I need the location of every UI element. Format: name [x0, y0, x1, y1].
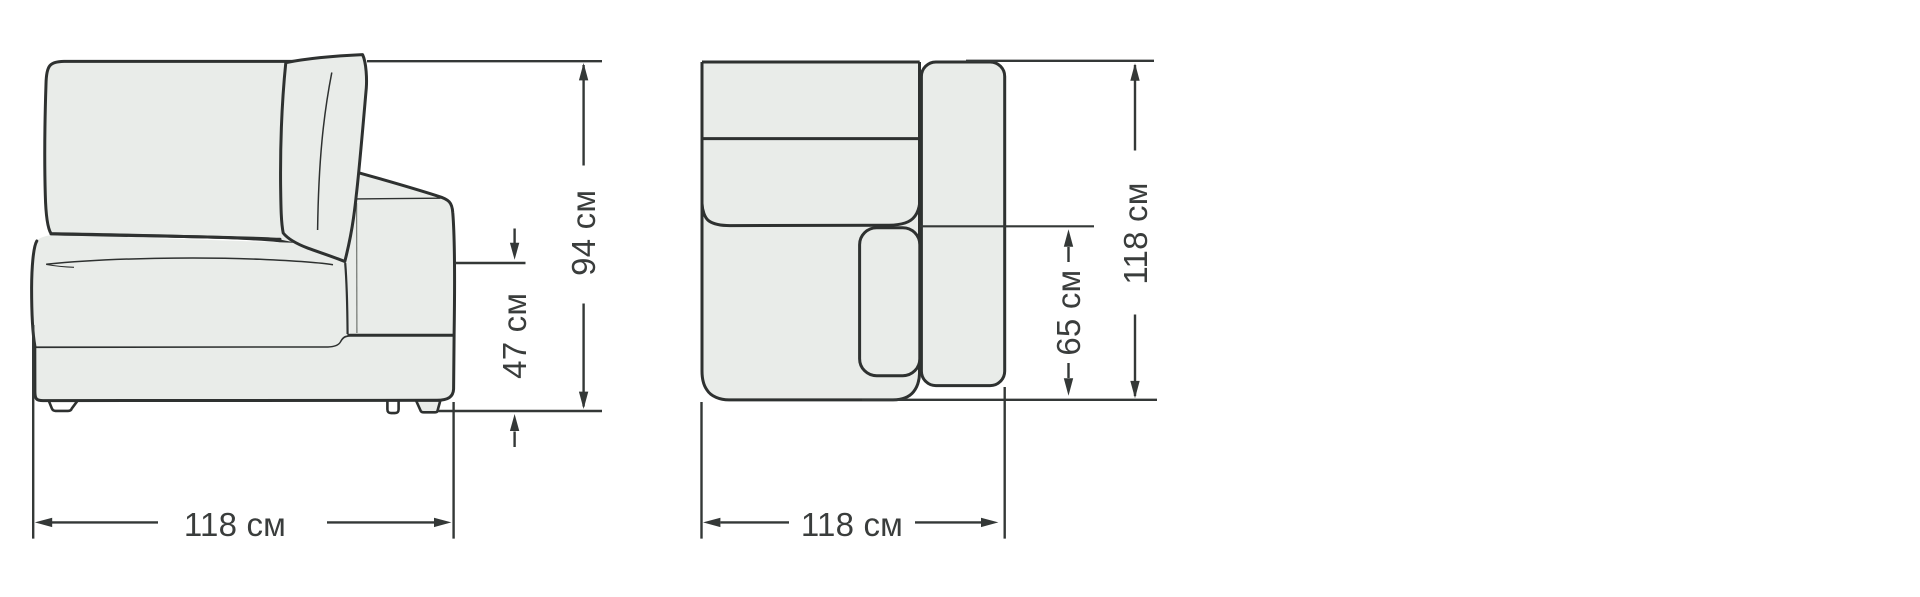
svg-text:118 см: 118 см [184, 506, 286, 543]
svg-text:47 см: 47 см [496, 293, 533, 379]
svg-text:118 см: 118 см [801, 506, 903, 543]
svg-text:65 см: 65 см [1050, 270, 1087, 356]
svg-text:94 см: 94 см [565, 190, 602, 276]
svg-text:118 см: 118 см [1117, 182, 1154, 284]
